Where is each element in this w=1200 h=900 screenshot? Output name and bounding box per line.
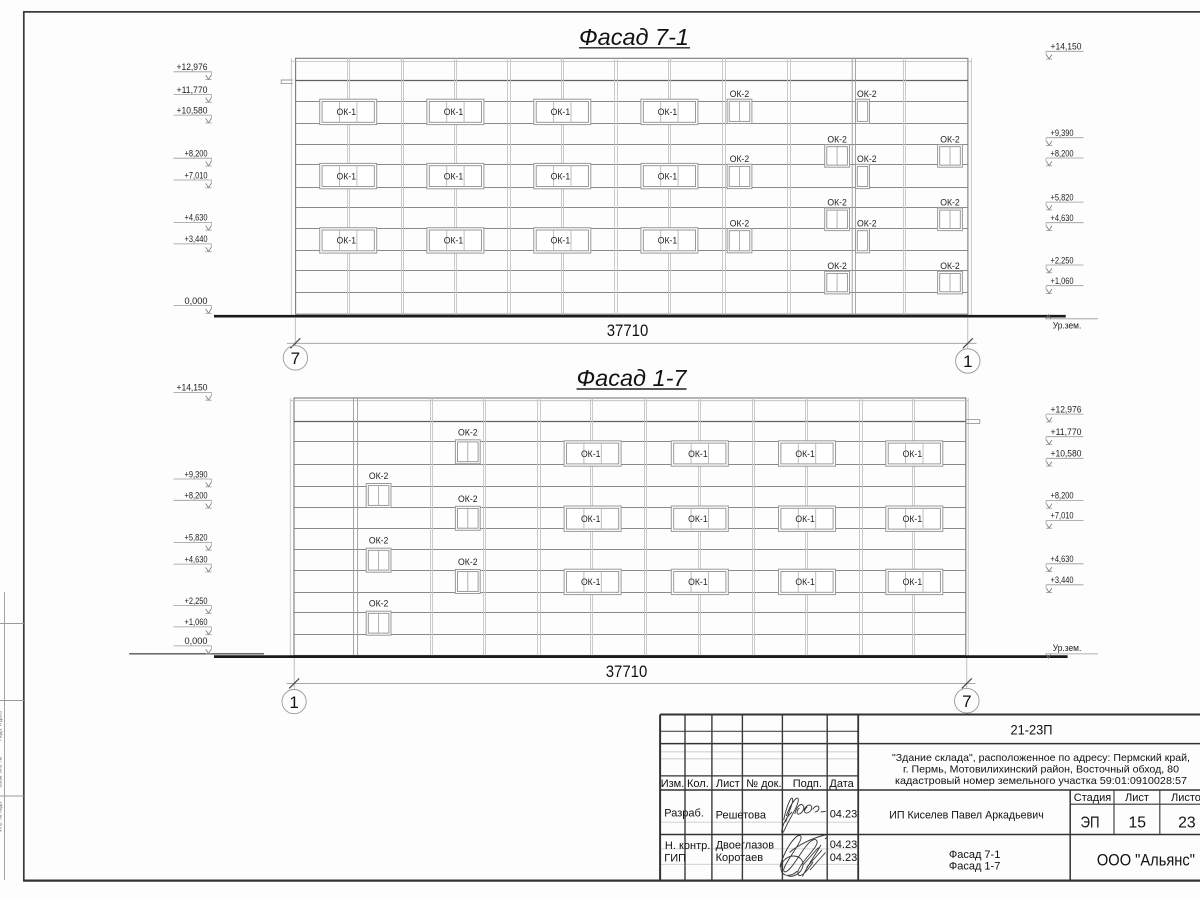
svg-text:1: 1 bbox=[289, 693, 298, 712]
svg-text:ОК-1: ОК-1 bbox=[688, 514, 708, 524]
svg-text:04.23: 04.23 bbox=[830, 839, 858, 851]
svg-text:+2,250: +2,250 bbox=[1051, 255, 1074, 265]
svg-text:ОК-1: ОК-1 bbox=[795, 577, 815, 587]
svg-text:ОК-1: ОК-1 bbox=[795, 514, 815, 524]
svg-text:ОК-1: ОК-1 bbox=[658, 107, 678, 117]
svg-text:+1,060: +1,060 bbox=[1051, 276, 1074, 286]
svg-text:ОК-1: ОК-1 bbox=[581, 577, 601, 587]
svg-text:Взам. инв. №: Взам. инв. № bbox=[0, 757, 4, 788]
svg-text:04.23: 04.23 bbox=[830, 809, 858, 821]
svg-text:ОК-2: ОК-2 bbox=[940, 134, 960, 144]
svg-text:0,000: 0,000 bbox=[185, 296, 208, 306]
svg-text:ОК-2: ОК-2 bbox=[458, 557, 478, 567]
svg-text:+8,200: +8,200 bbox=[1051, 148, 1074, 158]
svg-text:Стадия: Стадия bbox=[1074, 792, 1112, 804]
svg-text:ОК-1: ОК-1 bbox=[551, 171, 571, 181]
svg-text:Изм.: Изм. bbox=[661, 778, 685, 790]
svg-text:Листов: Листов bbox=[1171, 792, 1200, 804]
svg-text:№ док.: № док. bbox=[746, 778, 781, 790]
svg-text:Дата: Дата bbox=[829, 778, 854, 790]
svg-text:"Здание склада", расположенное: "Здание склада", расположенное по адресу… bbox=[892, 752, 1190, 764]
svg-text:ОК-1: ОК-1 bbox=[581, 449, 601, 459]
svg-text:Кол.: Кол. bbox=[687, 778, 709, 790]
svg-text:+5,820: +5,820 bbox=[1051, 192, 1074, 202]
svg-text:ОК-2: ОК-2 bbox=[827, 198, 847, 208]
svg-text:ОК-1: ОК-1 bbox=[795, 449, 815, 459]
svg-text:ОК-1: ОК-1 bbox=[444, 107, 464, 117]
svg-text:+4,630: +4,630 bbox=[185, 213, 208, 223]
svg-text:Подп.: Подп. bbox=[793, 778, 822, 790]
svg-text:37710: 37710 bbox=[606, 662, 648, 681]
svg-text:ОК-2: ОК-2 bbox=[827, 261, 847, 271]
svg-text:23: 23 bbox=[1178, 815, 1196, 832]
svg-text:+10,580: +10,580 bbox=[1051, 449, 1082, 459]
svg-text:+2,250: +2,250 bbox=[185, 596, 208, 606]
svg-text:Фасад 1-7: Фасад 1-7 bbox=[949, 860, 1000, 872]
svg-text:Подп. и дата: Подп. и дата bbox=[0, 711, 4, 741]
svg-text:ОК-1: ОК-1 bbox=[903, 449, 923, 459]
svg-text:Ур.зем.: Ур.зем. bbox=[1053, 643, 1082, 653]
svg-text:7: 7 bbox=[291, 349, 300, 368]
svg-text:ОК-2: ОК-2 bbox=[458, 494, 478, 504]
svg-text:+8,200: +8,200 bbox=[185, 491, 208, 501]
svg-text:+7,010: +7,010 bbox=[1051, 511, 1074, 521]
svg-text:кадастровый номер земельного у: кадастровый номер земельного участка 59:… bbox=[895, 775, 1187, 787]
svg-text:+9,390: +9,390 bbox=[185, 469, 208, 479]
svg-text:г. Пермь, Мотовилихинский райо: г. Пермь, Мотовилихинский район, Восточн… bbox=[903, 764, 1179, 776]
svg-text:+14,150: +14,150 bbox=[1051, 42, 1082, 52]
svg-text:ОК-1: ОК-1 bbox=[903, 577, 923, 587]
svg-text:+4,630: +4,630 bbox=[1051, 554, 1074, 564]
svg-text:ООО "Альянс": ООО "Альянс" bbox=[1097, 851, 1195, 870]
svg-text:04.23: 04.23 bbox=[830, 852, 858, 864]
svg-text:+7,010: +7,010 bbox=[185, 170, 208, 180]
svg-text:+9,390: +9,390 bbox=[1051, 128, 1074, 138]
svg-text:ОК-1: ОК-1 bbox=[658, 236, 678, 246]
svg-text:ОК-2: ОК-2 bbox=[940, 198, 960, 208]
svg-text:+1,060: +1,060 bbox=[185, 617, 208, 627]
svg-text:ОК-2: ОК-2 bbox=[369, 536, 389, 546]
svg-text:+11,770: +11,770 bbox=[1051, 427, 1082, 437]
svg-text:ЭП: ЭП bbox=[1081, 814, 1100, 831]
svg-text:Н. контр.: Н. контр. bbox=[665, 840, 710, 852]
svg-text:+11,770: +11,770 bbox=[177, 85, 208, 95]
svg-text:ОК-1: ОК-1 bbox=[658, 171, 678, 181]
svg-text:+8,200: +8,200 bbox=[185, 149, 208, 159]
svg-text:Фасад 7-1: Фасад 7-1 bbox=[579, 24, 689, 50]
svg-text:Двоеглазов: Двоеглазов bbox=[716, 839, 775, 851]
svg-text:ОК-1: ОК-1 bbox=[444, 236, 464, 246]
svg-text:+12,976: +12,976 bbox=[177, 62, 208, 72]
svg-text:ОК-2: ОК-2 bbox=[369, 471, 389, 481]
svg-text:+3,440: +3,440 bbox=[185, 234, 208, 244]
svg-text:+10,580: +10,580 bbox=[177, 105, 208, 115]
svg-text:ОК-1: ОК-1 bbox=[337, 107, 357, 117]
svg-text:21-23П: 21-23П bbox=[1011, 721, 1053, 737]
svg-text:ОК-2: ОК-2 bbox=[730, 218, 750, 228]
svg-text:7: 7 bbox=[962, 692, 971, 711]
svg-text:ОК-2: ОК-2 bbox=[857, 154, 877, 164]
svg-text:ОК-2: ОК-2 bbox=[857, 89, 877, 99]
svg-text:ОК-1: ОК-1 bbox=[688, 577, 708, 587]
svg-text:ОК-2: ОК-2 bbox=[730, 154, 750, 164]
svg-text:ОК-2: ОК-2 bbox=[730, 89, 750, 99]
svg-text:+5,820: +5,820 bbox=[185, 533, 208, 543]
svg-text:Инв. № подл.: Инв. № подл. bbox=[0, 800, 4, 831]
svg-text:ОК-1: ОК-1 bbox=[337, 236, 357, 246]
svg-text:ОК-2: ОК-2 bbox=[369, 599, 389, 609]
svg-text:ГИП: ГИП bbox=[664, 853, 686, 865]
svg-text:+4,630: +4,630 bbox=[1051, 213, 1074, 223]
svg-text:Ур.зем.: Ур.зем. bbox=[1053, 320, 1082, 330]
svg-text:ОК-1: ОК-1 bbox=[337, 171, 357, 181]
svg-text:ОК-1: ОК-1 bbox=[551, 236, 571, 246]
svg-text:0,000: 0,000 bbox=[185, 636, 208, 646]
svg-text:1: 1 bbox=[963, 352, 972, 371]
svg-text:ОК-1: ОК-1 bbox=[903, 514, 923, 524]
svg-text:15: 15 bbox=[1128, 815, 1146, 832]
svg-text:ОК-1: ОК-1 bbox=[551, 107, 571, 117]
svg-text:ОК-2: ОК-2 bbox=[827, 134, 847, 144]
svg-text:+4,630: +4,630 bbox=[185, 554, 208, 564]
svg-text:ОК-2: ОК-2 bbox=[940, 261, 960, 271]
svg-text:+3,440: +3,440 bbox=[1051, 575, 1074, 585]
svg-text:Лист: Лист bbox=[1125, 792, 1149, 804]
svg-text:Решетова: Решетова bbox=[716, 810, 767, 822]
svg-text:ОК-1: ОК-1 bbox=[581, 514, 601, 524]
svg-text:ОК-1: ОК-1 bbox=[688, 449, 708, 459]
svg-text:Разраб.: Разраб. bbox=[664, 808, 704, 820]
svg-text:Лист: Лист bbox=[716, 778, 740, 790]
svg-text:Фасад 1-7: Фасад 1-7 bbox=[577, 365, 688, 391]
svg-text:+14,150: +14,150 bbox=[177, 383, 208, 393]
svg-text:ОК-2: ОК-2 bbox=[458, 427, 478, 437]
svg-text:+8,200: +8,200 bbox=[1051, 491, 1074, 501]
svg-text:+12,976: +12,976 bbox=[1051, 404, 1082, 414]
svg-text:ОК-1: ОК-1 bbox=[444, 171, 464, 181]
svg-text:37710: 37710 bbox=[607, 321, 649, 340]
svg-text:Коротаев: Коротаев bbox=[716, 852, 764, 864]
svg-text:ИП Киселев Павел Аркадьевич: ИП Киселев Павел Аркадьевич bbox=[889, 810, 1044, 822]
svg-text:ОК-2: ОК-2 bbox=[857, 218, 877, 228]
